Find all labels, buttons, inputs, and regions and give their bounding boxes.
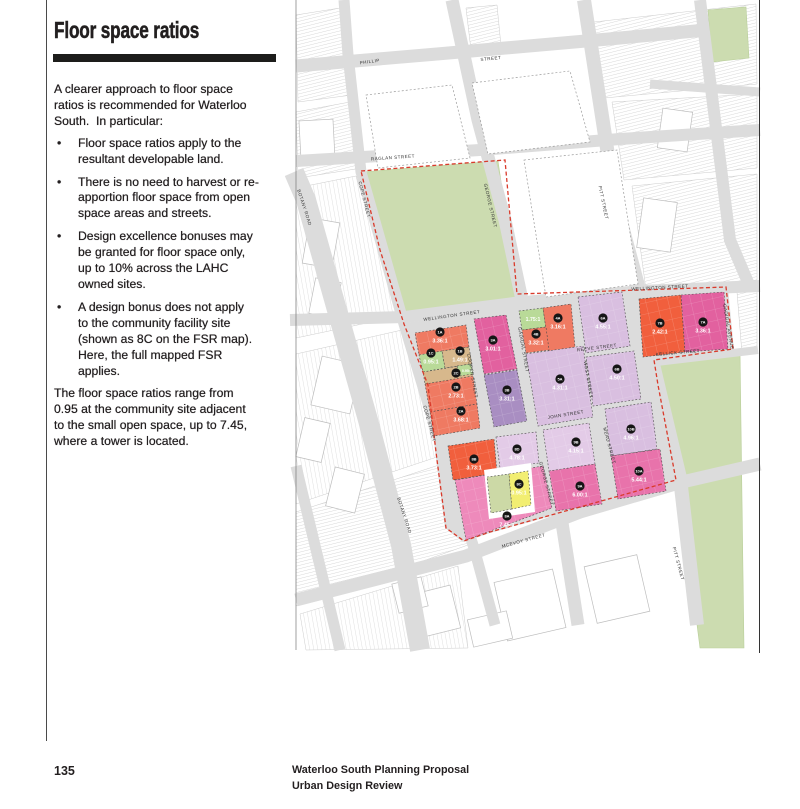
svg-text:3.16:1: 3.16:1: [550, 325, 565, 331]
svg-text:1A: 1A: [437, 330, 442, 335]
svg-text:4.15:1: 4.15:1: [568, 449, 583, 455]
svg-text:0.95:1: 0.95:1: [423, 360, 438, 366]
svg-text:7B: 7B: [657, 321, 662, 326]
svg-text:4.96:1: 4.96:1: [623, 436, 638, 442]
svg-text:2.73:1: 2.73:1: [448, 394, 463, 400]
svg-text:4.78:1: 4.78:1: [509, 456, 524, 462]
svg-text:1.75:1: 1.75:1: [526, 317, 541, 323]
svg-text:8A: 8A: [504, 514, 509, 519]
svg-text:2.42:1: 2.42:1: [652, 330, 667, 336]
svg-text:8D: 8D: [514, 447, 519, 452]
svg-text:10A: 10A: [635, 469, 642, 474]
svg-text:3.32:1: 3.32:1: [528, 341, 543, 347]
svg-text:3.31:1: 3.31:1: [499, 397, 514, 403]
svg-text:3.73:1: 3.73:1: [466, 466, 481, 472]
svg-text:9B: 9B: [573, 440, 578, 445]
svg-text:2A: 2A: [458, 409, 463, 414]
svg-text:4.50:1: 4.50:1: [609, 376, 624, 382]
svg-text:0.95:1: 0.95:1: [511, 491, 526, 497]
svg-text:5A: 5A: [557, 377, 562, 382]
svg-text:4.31:1: 4.31:1: [552, 386, 567, 392]
svg-text:6.00:1: 6.00:1: [572, 493, 587, 499]
svg-text:3A: 3A: [490, 338, 495, 343]
svg-text:STREET: STREET: [480, 55, 501, 62]
svg-text:8B: 8B: [471, 457, 476, 462]
svg-text:1.49:1: 1.49:1: [452, 358, 467, 364]
svg-text:4.55:1: 4.55:1: [595, 325, 610, 331]
svg-text:6A: 6A: [600, 316, 605, 321]
svg-text:6B: 6B: [614, 367, 619, 372]
svg-text:4B: 4B: [533, 332, 538, 337]
svg-text:8C: 8C: [516, 482, 521, 487]
svg-text:9A: 9A: [577, 484, 582, 489]
svg-text:3.36:1: 3.36:1: [695, 329, 710, 335]
svg-text:0.95:1: 0.95:1: [462, 369, 472, 373]
svg-text:3B: 3B: [504, 388, 509, 393]
svg-text:2C: 2C: [453, 371, 458, 376]
svg-text:1C: 1C: [428, 351, 433, 356]
svg-text:4A: 4A: [555, 316, 560, 321]
svg-text:7.45:1: 7.45:1: [499, 523, 514, 529]
svg-text:7A: 7A: [700, 320, 705, 325]
svg-text:10B: 10B: [627, 427, 634, 432]
svg-text:3.68:1: 3.68:1: [453, 418, 468, 424]
svg-text:3.36:1: 3.36:1: [432, 339, 447, 345]
svg-text:5.44:1: 5.44:1: [631, 478, 646, 484]
svg-text:2B: 2B: [453, 385, 458, 390]
svg-text:3.01:1: 3.01:1: [485, 347, 500, 353]
svg-text:1B: 1B: [457, 349, 462, 354]
